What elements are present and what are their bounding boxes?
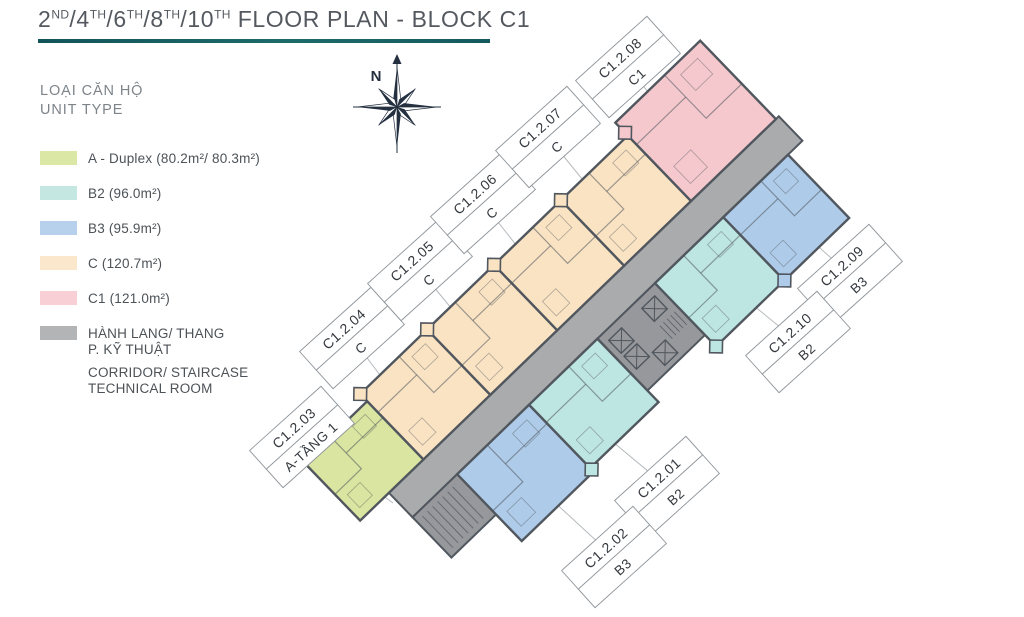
legend-swatch-C1	[40, 291, 77, 305]
legend-label-C1: C1 (121.0m²)	[88, 291, 170, 306]
legend-item-B2: B2 (96.0m²)	[40, 186, 290, 201]
legend-item-C: C (120.7m²)	[40, 256, 290, 271]
unit-type-legend: LOẠI CĂN HỘ UNIT TYPE A - Duplex (80.2m²…	[40, 82, 290, 417]
compass-north-label: N	[371, 68, 382, 85]
legend-label-B2: B2 (96.0m²)	[88, 186, 161, 201]
legend-heading-en: UNIT TYPE	[40, 101, 290, 120]
legend-swatch-C	[40, 256, 77, 270]
legend-item-C1: C1 (121.0m²)	[40, 291, 290, 306]
legend-items: A - Duplex (80.2m²/ 80.3m²)B2 (96.0m²)B3…	[40, 151, 290, 398]
legend-item-B3: B3 (95.9m²)	[40, 221, 290, 236]
legend-swatch-B3	[40, 221, 77, 235]
legend-label-C: C (120.7m²)	[88, 256, 162, 271]
legend-heading: LOẠI CĂN HỘ UNIT TYPE	[40, 82, 290, 120]
compass-rose-icon: N	[353, 54, 441, 153]
legend-swatch-B2	[40, 186, 77, 200]
legend-item-A: A - Duplex (80.2m²/ 80.3m²)	[40, 151, 290, 166]
legend-heading-vi: LOẠI CĂN HỘ	[40, 82, 290, 101]
legend-swatch-A	[40, 151, 77, 165]
legend-item-corridor: HÀNH LANG/ THANGP. KỸ THUẬTCORRIDOR/ STA…	[40, 326, 290, 398]
legend-label-corridor: HÀNH LANG/ THANGP. KỸ THUẬTCORRIDOR/ STA…	[88, 326, 248, 398]
legend-label-B3: B3 (95.9m²)	[88, 221, 161, 236]
legend-swatch-corridor	[40, 326, 77, 340]
legend-label-A: A - Duplex (80.2m²/ 80.3m²)	[88, 151, 260, 166]
